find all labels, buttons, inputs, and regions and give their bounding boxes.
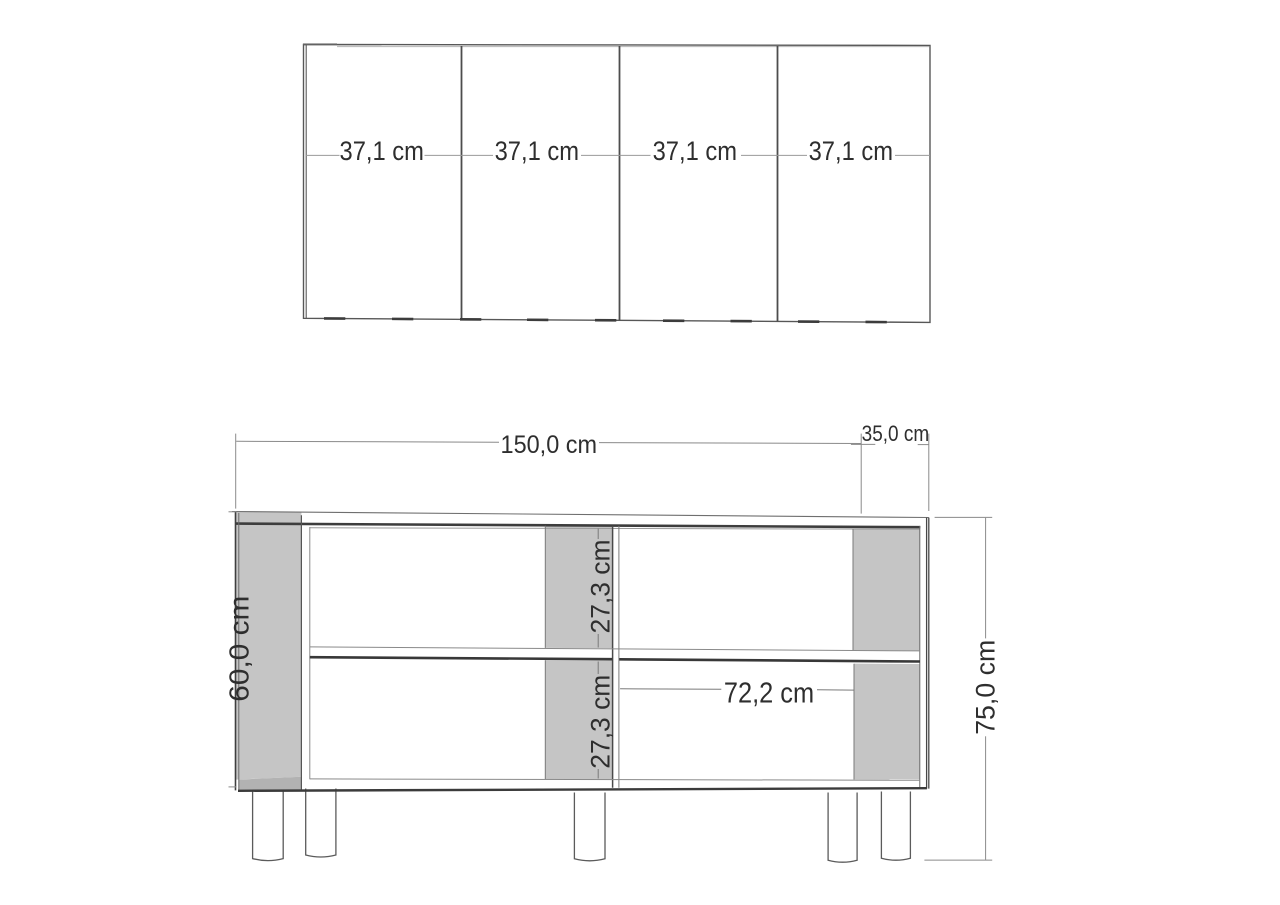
svg-text:37,1 cm: 37,1 cm xyxy=(809,136,893,166)
svg-text:60,0 cm: 60,0 cm xyxy=(224,596,255,702)
svg-text:27,3 cm: 27,3 cm xyxy=(586,540,616,634)
svg-text:37,1 cm: 37,1 cm xyxy=(653,136,737,166)
svg-text:37,1 cm: 37,1 cm xyxy=(340,136,424,166)
svg-text:75,0 cm: 75,0 cm xyxy=(971,640,1001,735)
svg-text:150,0 cm: 150,0 cm xyxy=(501,431,598,459)
svg-text:35,0 cm: 35,0 cm xyxy=(862,421,930,446)
svg-text:27,3 cm: 27,3 cm xyxy=(586,675,616,769)
svg-text:72,2 cm: 72,2 cm xyxy=(724,677,814,709)
svg-text:37,1 cm: 37,1 cm xyxy=(495,136,579,166)
